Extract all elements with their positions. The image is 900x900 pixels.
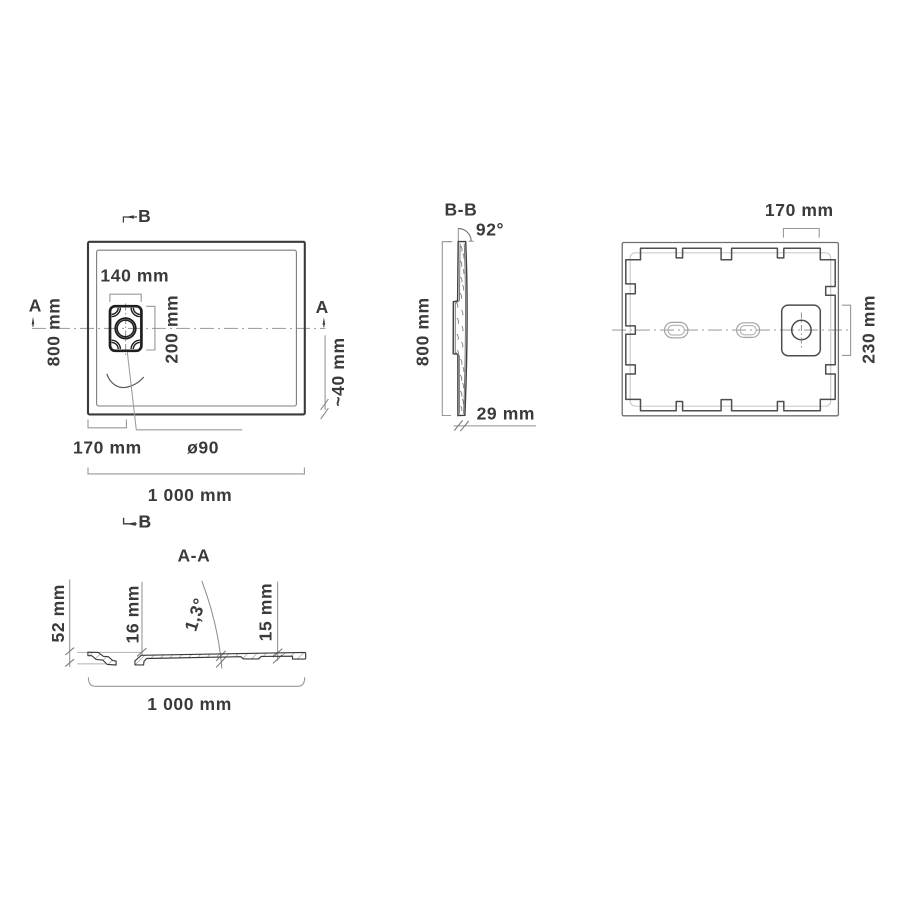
svg-text:ø90: ø90: [187, 437, 219, 457]
svg-text:140 mm: 140 mm: [100, 266, 169, 286]
svg-text:170 mm: 170 mm: [765, 200, 834, 220]
svg-text:B: B: [138, 206, 151, 226]
svg-text:B: B: [138, 512, 151, 532]
svg-text:92°: 92°: [476, 219, 504, 239]
svg-text:16 mm: 16 mm: [123, 585, 143, 643]
svg-text:170 mm: 170 mm: [73, 437, 142, 457]
svg-text:1 000 mm: 1 000 mm: [147, 694, 232, 714]
svg-text:15 mm: 15 mm: [256, 583, 276, 641]
svg-text:B-B: B-B: [444, 200, 477, 220]
svg-text:A-A: A-A: [177, 546, 210, 566]
svg-text:800 mm: 800 mm: [412, 297, 432, 366]
svg-text:200 mm: 200 mm: [162, 295, 182, 364]
svg-text:A: A: [29, 296, 42, 316]
svg-text:~40 mm: ~40 mm: [328, 337, 348, 406]
svg-text:52 mm: 52 mm: [48, 584, 68, 642]
svg-text:800 mm: 800 mm: [44, 298, 64, 367]
svg-text:29 mm: 29 mm: [477, 403, 535, 423]
svg-text:1 000 mm: 1 000 mm: [148, 485, 233, 505]
svg-text:230 mm: 230 mm: [858, 295, 878, 364]
svg-text:A: A: [316, 297, 329, 317]
